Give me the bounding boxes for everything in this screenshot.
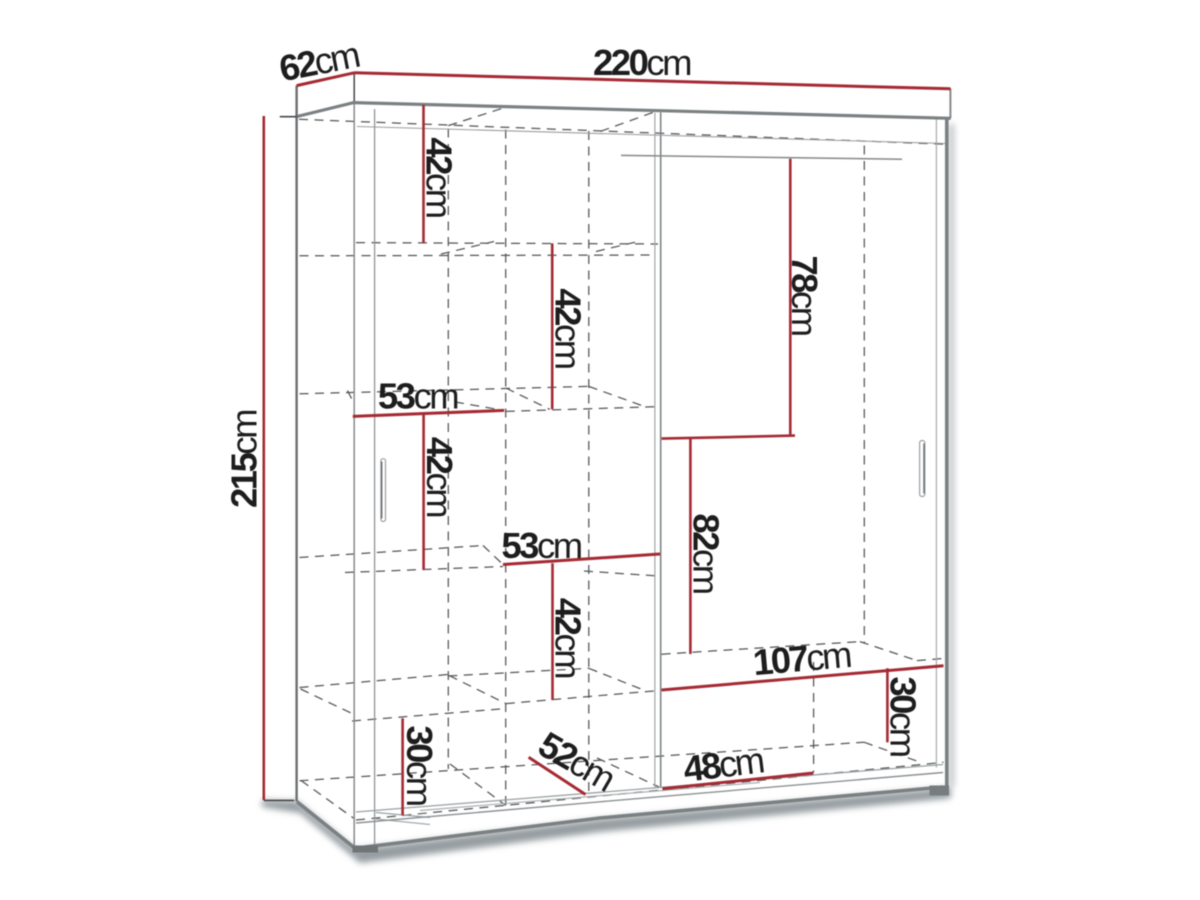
svg-text:42cm: 42cm [547,288,588,367]
svg-text:48cm: 48cm [681,739,765,789]
svg-text:220cm: 220cm [593,42,690,83]
svg-text:42cm: 42cm [419,137,460,216]
svg-text:82cm: 82cm [686,513,727,592]
svg-text:62cm: 62cm [276,34,362,89]
svg-text:53cm: 53cm [501,525,580,566]
svg-text:53cm: 53cm [378,376,457,417]
svg-text:42cm: 42cm [548,598,589,677]
svg-text:107cm: 107cm [751,634,851,683]
svg-text:42cm: 42cm [419,437,460,516]
svg-text:30cm: 30cm [399,725,440,804]
svg-text:215cm: 215cm [224,411,265,508]
svg-text:30cm: 30cm [883,676,924,755]
svg-text:78cm: 78cm [784,255,825,334]
